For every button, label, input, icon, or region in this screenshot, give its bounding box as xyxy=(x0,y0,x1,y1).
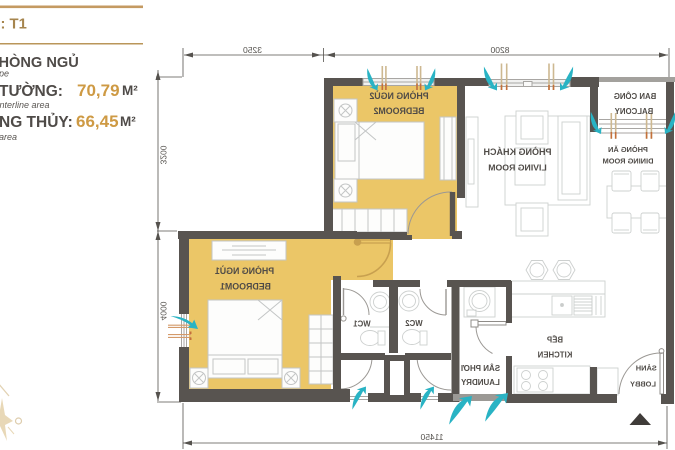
svg-text:LIVING ROOM: LIVING ROOM xyxy=(488,163,546,173)
svg-text:PHÒNG NGỦ1: PHÒNG NGỦ1 xyxy=(215,265,274,276)
svg-text:nterline area: nterline area xyxy=(0,100,50,110)
svg-text:PHÒNG ĂN: PHÒNG ĂN xyxy=(608,145,648,154)
svg-text:area: area xyxy=(0,132,17,142)
svg-text:WC2: WC2 xyxy=(405,319,423,328)
svg-text:WC1: WC1 xyxy=(353,320,371,329)
svg-text:PHÒNG KHÁCH: PHÒNG KHÁCH xyxy=(483,146,551,157)
svg-text:8200: 8200 xyxy=(490,45,509,55)
svg-text:3200: 3200 xyxy=(159,145,169,164)
svg-text:70,79: 70,79 xyxy=(77,81,120,100)
svg-text:11450: 11450 xyxy=(420,432,443,442)
svg-text:PHÒNG NGỦ2: PHÒNG NGỦ2 xyxy=(369,90,428,101)
svg-text:LAUNDRY: LAUNDRY xyxy=(460,378,499,387)
svg-text:: T1: : T1 xyxy=(1,17,27,33)
svg-text:BEDROOM2: BEDROOM2 xyxy=(373,106,424,116)
svg-text:3250: 3250 xyxy=(243,45,262,55)
svg-text:pe: pe xyxy=(0,69,9,79)
svg-text:M²: M² xyxy=(120,114,136,129)
svg-text:KITCHEN: KITCHEN xyxy=(537,351,572,360)
svg-text:BẾP: BẾP xyxy=(547,335,563,345)
svg-text:SẢNH: SẢNH xyxy=(636,364,657,373)
svg-text:NG THỦY:: NG THỦY: xyxy=(0,113,73,131)
svg-text:DINING ROOM: DINING ROOM xyxy=(603,157,654,166)
svg-text:LOBBY: LOBBY xyxy=(630,380,656,389)
svg-text:SÂN PHƠI: SÂN PHƠI xyxy=(461,364,500,373)
svg-text:BAN CÔNG: BAN CÔNG xyxy=(614,92,656,101)
svg-text:TƯỜNG:: TƯỜNG: xyxy=(0,82,63,100)
svg-text:BALCONY: BALCONY xyxy=(614,107,653,116)
svg-text:66,45: 66,45 xyxy=(76,112,119,131)
svg-text:HÒNG NGỦ: HÒNG NGỦ xyxy=(0,53,79,71)
svg-text:M²: M² xyxy=(122,83,138,98)
svg-text:BEDROOM1: BEDROOM1 xyxy=(220,282,271,292)
svg-text:4000: 4000 xyxy=(159,301,169,320)
